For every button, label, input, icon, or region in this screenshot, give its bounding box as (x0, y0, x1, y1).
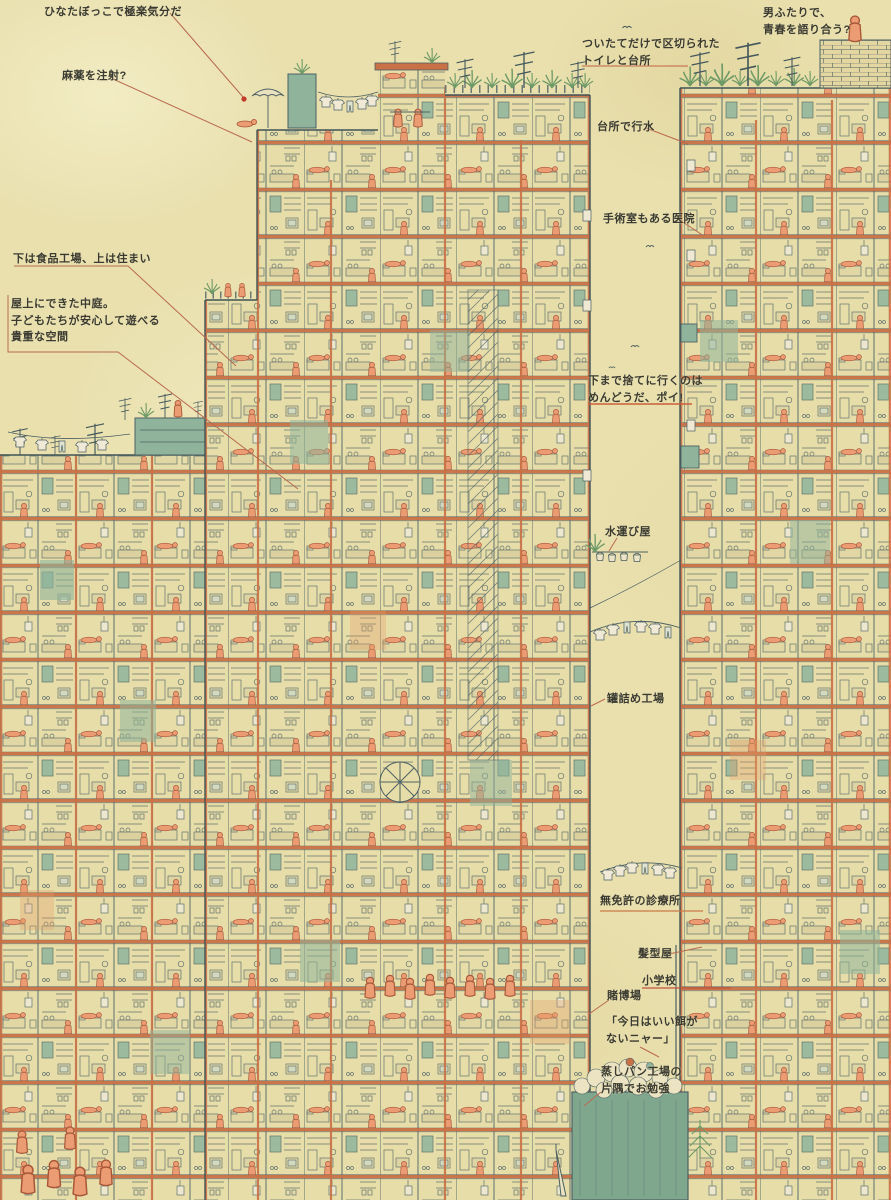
annotation-cat-no-food: 「今日はいい餌が ないニャー」 (606, 1014, 698, 1047)
left-tower (0, 394, 215, 1200)
annotation-sunbathing: ひなたぼっこで極楽気分だ (44, 4, 182, 21)
birds (609, 26, 654, 368)
annotation-steamed-bun-study: 蒸しパン工場の 片隅でお勉強 (601, 1064, 682, 1097)
annotation-elementary-school: 小学校 (642, 973, 677, 990)
kowloon-cross-section-illustration: ひなたぼっこで極楽気分だ 麻薬を注射? ついたてだけで区切られた トイレと台所 … (0, 0, 891, 1200)
annotation-trash-toss: 下まで捨てに行くのは めんどうだ、ポイ! (588, 373, 703, 406)
fan-wheel (380, 762, 420, 802)
annotation-hair-salon: 髪型屋 (638, 946, 673, 963)
laundry-line (8, 432, 130, 439)
annotation-partition-toilet-kitchen: ついたてだけで区切られた トイレと台所 (582, 36, 720, 69)
annotation-unlicensed-clinic: 無免許の診療所 (600, 893, 681, 910)
left-tower-rooftop (8, 394, 212, 455)
sunbather (237, 121, 253, 127)
illustration-canvas (0, 0, 891, 1200)
shoulder-courtyard (204, 279, 257, 297)
annotation-two-men-youth: 男ふたりで、 青春を語り合う? (763, 5, 851, 38)
water-tank (288, 74, 316, 128)
annotation-water-carrier: 水運び屋 (605, 524, 651, 541)
annotation-food-factory-below: 下は食品工場、上は住まい (13, 251, 151, 268)
annotation-gambling-den: 賭博場 (607, 988, 642, 1005)
annotation-canning-factory: 罐詰め工場 (607, 691, 665, 708)
central-tower (204, 41, 593, 1200)
annotation-clinic-with-surgery: 手術室もある医院 (603, 211, 695, 228)
cable (590, 560, 681, 608)
marker-dot (241, 96, 246, 101)
annotation-rooftop-courtyard: 屋上にできた中庭。 子どもたちが安心して遊べる 貴重な空間 (11, 296, 160, 346)
brick-parapet (820, 40, 891, 88)
right-tower (680, 16, 891, 1200)
annotation-drug-injection: 麻薬を注射? (62, 68, 127, 85)
stairwell (468, 290, 498, 760)
annotation-kitchen-bathing: 台所で行水 (597, 119, 655, 136)
